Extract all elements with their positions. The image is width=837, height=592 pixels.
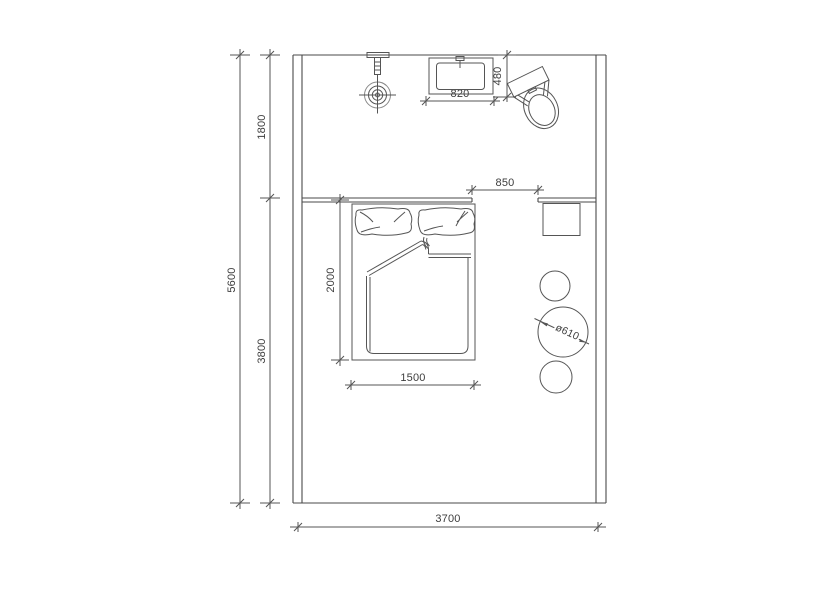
dim-bed-length-label: 2000 <box>325 267 337 292</box>
dim-wall-opening-label: 850 <box>496 177 515 189</box>
bed <box>352 204 475 360</box>
dim-bed-width-label: 1500 <box>400 372 425 384</box>
dim-upper-zone-label: 1800 <box>256 114 268 139</box>
duvet <box>367 237 472 354</box>
pillow-right <box>418 208 475 236</box>
fixtures <box>352 53 588 394</box>
dim-lower-zone-label: 3800 <box>256 338 268 363</box>
floor-plan-drawing: 5600 1800 3800 3700 2000 1500 820 480 85… <box>0 0 837 592</box>
pillow-left <box>355 208 412 236</box>
dim-room-width-label: 3700 <box>435 513 460 525</box>
nightstand <box>543 204 580 236</box>
dim-total-height-label: 5600 <box>226 267 238 292</box>
left-wall <box>293 55 302 503</box>
dim-stool-diameter-label: ø610 <box>554 322 581 343</box>
diameter-arrow-right <box>579 339 586 343</box>
diameter-arrow-left <box>540 322 548 327</box>
partition-wall-left <box>302 198 472 202</box>
right-wall <box>596 55 606 503</box>
dimensions <box>230 49 606 532</box>
stool-top <box>540 271 570 301</box>
floor-plan-canvas: 5600 1800 3800 3700 2000 1500 820 480 85… <box>0 0 837 592</box>
dimension-labels: 5600 1800 3800 3700 2000 1500 820 480 85… <box>226 67 581 525</box>
toilet <box>507 66 567 135</box>
partition-wall-right <box>538 198 596 202</box>
dim-vanity-depth-label: 480 <box>492 67 504 86</box>
ceiling-light-icon <box>359 53 396 114</box>
stool-bottom <box>540 361 572 393</box>
